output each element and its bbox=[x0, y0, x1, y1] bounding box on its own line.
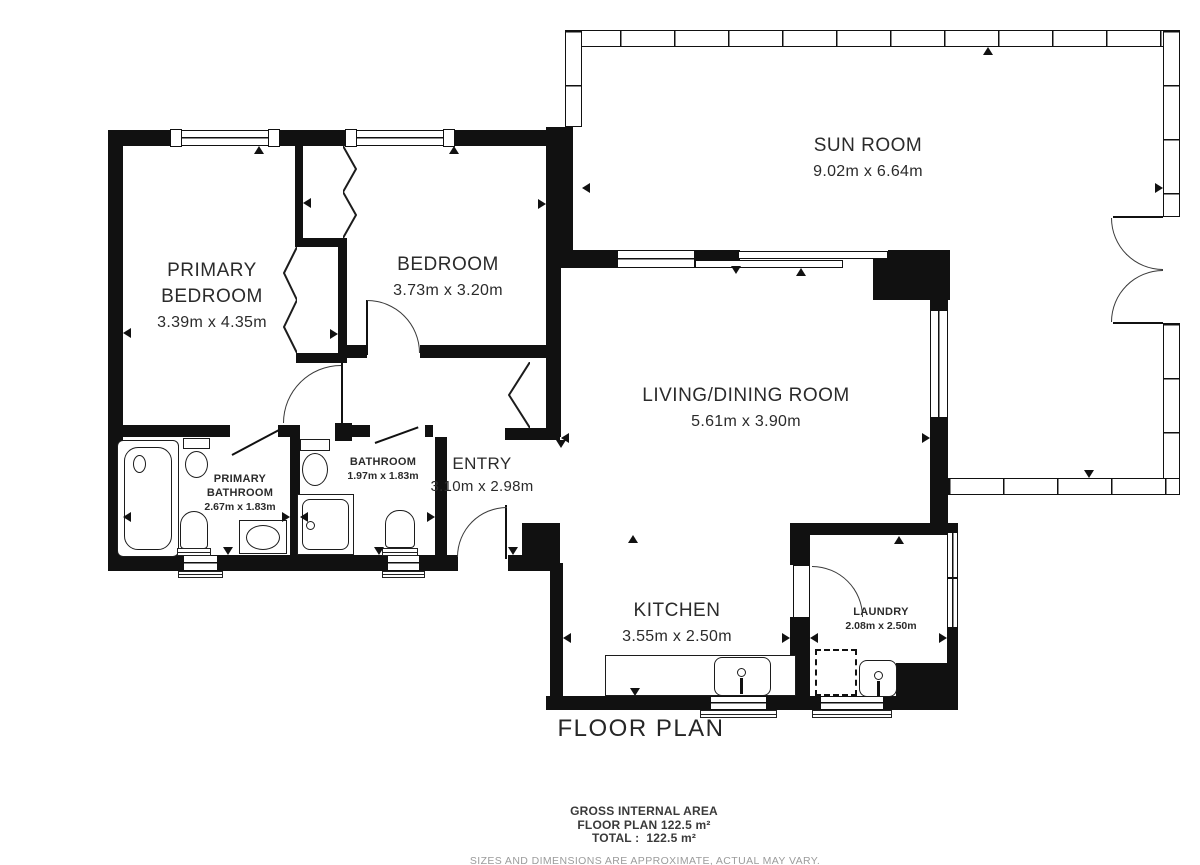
sink-base bbox=[177, 548, 211, 556]
wall-top-c bbox=[448, 130, 560, 146]
window-bedroom bbox=[352, 130, 448, 146]
marker bbox=[123, 512, 131, 522]
area-total: TOTAL : 122.5 m² bbox=[494, 832, 794, 846]
laundry-door-leaf bbox=[793, 565, 810, 618]
wall-entry-closet-bottom bbox=[505, 428, 560, 440]
wall-living-east-b bbox=[930, 418, 948, 523]
primary-bedroom-label: PRIMARY BEDROOM 3.39m x 4.35m bbox=[112, 258, 312, 336]
window-primary-bathroom bbox=[183, 555, 218, 571]
laundry-counter bbox=[896, 663, 947, 697]
marker bbox=[582, 183, 590, 193]
front-door-arc bbox=[457, 507, 507, 557]
bathroom-door-leaf bbox=[375, 426, 419, 444]
primary-bedroom-door-leaf bbox=[341, 363, 343, 425]
faucet bbox=[874, 671, 883, 680]
room-name-line2: BATHROOM bbox=[180, 486, 300, 500]
window-sill bbox=[812, 710, 892, 718]
room-dims: 5.61m x 3.90m bbox=[621, 409, 871, 435]
bedroom-door-arc bbox=[367, 300, 420, 353]
marker bbox=[223, 547, 233, 555]
laundry-label: LAUNDRY 2.08m x 2.50m bbox=[821, 605, 941, 633]
marker bbox=[374, 547, 384, 555]
window-sill bbox=[382, 571, 425, 578]
marker bbox=[563, 633, 571, 643]
wall-living-east-a bbox=[930, 268, 948, 310]
room-dims: 9.02m x 6.64m bbox=[768, 159, 968, 185]
sliding-door-rail bbox=[695, 260, 843, 268]
window-bathroom bbox=[387, 555, 420, 571]
wall-bath-bottom-d bbox=[508, 555, 560, 571]
faucet bbox=[737, 668, 746, 677]
marker bbox=[330, 329, 338, 339]
marker bbox=[254, 146, 264, 154]
living-dining-label: LIVING/DINING ROOM 5.61m x 3.90m bbox=[621, 383, 871, 435]
marker bbox=[508, 547, 518, 555]
area-summary: GROSS INTERNAL AREA FLOOR PLAN 122.5 m² … bbox=[494, 805, 794, 846]
room-name: KITCHEN bbox=[577, 598, 777, 624]
room-dims: 3.73m x 3.20m bbox=[348, 278, 548, 304]
wall-top-b bbox=[273, 130, 352, 146]
room-name-line2: BEDROOM bbox=[112, 284, 312, 310]
room-dims: 3.10m x 2.98m bbox=[407, 475, 557, 498]
sunroom-glass-wall-top bbox=[565, 30, 1180, 47]
window-sill bbox=[178, 571, 223, 578]
window-living-top bbox=[617, 250, 695, 268]
marker bbox=[449, 146, 459, 154]
marker bbox=[1084, 470, 1094, 478]
toilet-tank bbox=[183, 438, 210, 449]
marker bbox=[922, 433, 930, 443]
window-primary-bedroom bbox=[177, 130, 273, 146]
french-door-arc-lower bbox=[1111, 270, 1163, 322]
window-post bbox=[268, 129, 280, 147]
room-name: LAUNDRY bbox=[821, 605, 941, 619]
french-door-arc-upper bbox=[1111, 218, 1163, 270]
wall-closet-lower-right bbox=[338, 238, 347, 363]
vanity-basin bbox=[246, 525, 280, 550]
wall-hall-d bbox=[425, 425, 433, 437]
primary-bathroom-label: PRIMARY BATHROOM 2.67m x 1.83m bbox=[180, 472, 300, 514]
sunroom-glass-wall-bottom bbox=[948, 478, 1180, 495]
sun-room-label: SUN ROOM 9.02m x 6.64m bbox=[768, 133, 968, 185]
room-name: SUN ROOM bbox=[768, 133, 968, 159]
wall-kitchen-left bbox=[550, 563, 563, 710]
wall-living-top-a bbox=[546, 250, 617, 268]
window-post bbox=[170, 129, 182, 147]
plan-title: FLOOR PLAN bbox=[491, 716, 791, 742]
marker bbox=[561, 433, 569, 443]
pedestal-sink bbox=[180, 511, 208, 549]
bedroom-label: BEDROOM 3.73m x 3.20m bbox=[348, 252, 548, 304]
room-dims: 3.55m x 2.50m bbox=[577, 624, 777, 650]
wall-laundry-right-b bbox=[947, 626, 958, 705]
window-laundry-right-b bbox=[947, 578, 958, 628]
wall-laundry-left-a bbox=[790, 523, 810, 565]
window-laundry-right-a bbox=[947, 532, 958, 578]
wall-bath-bottom-c bbox=[420, 555, 458, 571]
room-name-line1: PRIMARY bbox=[112, 258, 312, 284]
marker bbox=[427, 512, 435, 522]
toilet-tank bbox=[300, 439, 330, 451]
primary-bedroom-door-arc bbox=[283, 365, 341, 423]
window-post bbox=[345, 129, 357, 147]
kitchen-label: KITCHEN 3.55m x 2.50m bbox=[577, 598, 777, 650]
room-dims: 2.08m x 2.50m bbox=[821, 619, 941, 633]
marker bbox=[782, 633, 790, 643]
floor-plan: SUN ROOM 9.02m x 6.64m PRIMARY BEDROOM 3… bbox=[0, 0, 1200, 865]
bifold-door-bedroom-closet bbox=[343, 146, 357, 238]
marker bbox=[630, 688, 640, 696]
wall-laundry-top bbox=[790, 523, 958, 535]
marker bbox=[300, 512, 308, 522]
room-name-line1: PRIMARY bbox=[180, 472, 300, 486]
marker bbox=[1155, 183, 1163, 193]
wall-closet-upper-left bbox=[295, 146, 303, 247]
primary-bathroom-door-leaf bbox=[232, 429, 280, 456]
wall-bottom-c bbox=[884, 696, 958, 710]
marker bbox=[894, 536, 904, 544]
washer-location bbox=[815, 649, 857, 696]
wall-closet-lower-bottom bbox=[296, 353, 347, 363]
wall-bottom-a bbox=[546, 696, 710, 710]
sunroom-glass-wall-right-lower bbox=[1163, 323, 1180, 495]
wall-hall-b bbox=[278, 425, 300, 437]
wall-bottom-b bbox=[767, 696, 820, 710]
marker bbox=[810, 633, 818, 643]
sliding-door-rail bbox=[738, 251, 888, 259]
marker bbox=[939, 633, 947, 643]
wall-hall-stub bbox=[335, 423, 352, 441]
disclaimer: SIZES AND DIMENSIONS ARE APPROXIMATE, AC… bbox=[420, 848, 870, 865]
room-dims: 3.39m x 4.35m bbox=[112, 310, 312, 336]
wall-bedroom-south-a bbox=[347, 345, 367, 358]
french-door-leaf bbox=[1113, 322, 1163, 324]
bifold-door-entry-closet bbox=[508, 362, 530, 428]
bathtub-drain bbox=[133, 455, 146, 473]
room-name: LIVING/DINING ROOM bbox=[621, 383, 871, 409]
wall-top-a bbox=[108, 130, 177, 146]
faucet-stub bbox=[740, 678, 743, 694]
marker bbox=[731, 266, 741, 274]
marker bbox=[796, 268, 806, 276]
window-kitchen-bottom bbox=[710, 696, 767, 710]
window-laundry-bottom bbox=[820, 696, 884, 710]
faucet-stub bbox=[877, 681, 880, 696]
marker bbox=[628, 535, 638, 543]
wall-bath-bottom-a bbox=[108, 555, 183, 571]
pedestal-sink bbox=[385, 510, 415, 548]
area-heading: GROSS INTERNAL AREA bbox=[494, 805, 794, 819]
room-name: ENTRY bbox=[407, 452, 557, 475]
wall-hall-a bbox=[108, 425, 230, 437]
french-door-leaf bbox=[1113, 216, 1163, 218]
wall-bath-bottom-b bbox=[218, 555, 387, 571]
area-floor-plan: FLOOR PLAN 122.5 m² bbox=[494, 819, 794, 833]
sunroom-glass-wall-right-upper bbox=[1163, 30, 1180, 217]
window-living-east bbox=[930, 310, 948, 418]
shower-drain bbox=[306, 521, 315, 530]
wall-sunroom-left-solid bbox=[546, 127, 573, 252]
bathtub-inner bbox=[124, 447, 172, 550]
marker bbox=[303, 198, 311, 208]
window-post bbox=[443, 129, 455, 147]
wall-bedroom-south-b bbox=[420, 345, 560, 358]
sunroom-glass-wall-left bbox=[565, 30, 582, 127]
wall-hall-c bbox=[352, 425, 370, 437]
marker bbox=[538, 199, 546, 209]
room-dims: 2.67m x 1.83m bbox=[180, 500, 300, 514]
sink-base bbox=[382, 548, 418, 556]
entry-label: ENTRY 3.10m x 2.98m bbox=[407, 452, 557, 498]
room-name: BEDROOM bbox=[348, 252, 548, 278]
marker bbox=[983, 47, 993, 55]
